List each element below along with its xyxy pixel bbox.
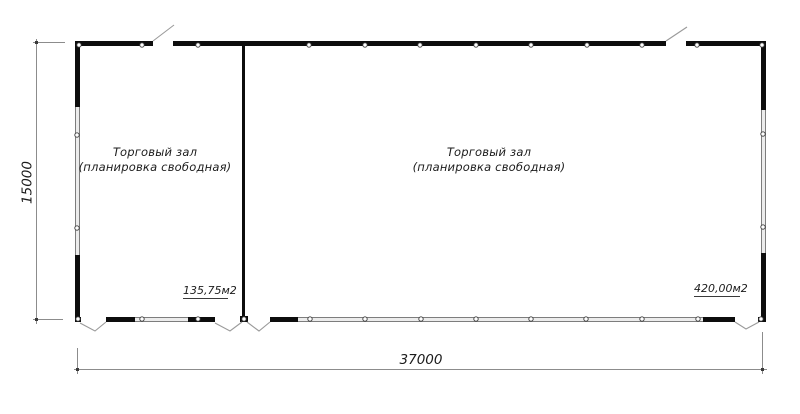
wall-bottom-segment-1 [106,317,135,322]
wall-bottom-segment-2 [188,317,215,322]
wall-top-segment-2 [173,41,666,46]
column-markers [75,43,765,321]
floor-plan-drawing: Торговый зал (планировка свободная) Торг… [0,0,800,414]
room1-label: Торговый зал [75,145,235,159]
room2-area-label: 420,00м2 [694,282,740,297]
wall-right-segment-1 [761,41,766,110]
door-swing-top-left [153,25,174,41]
door-swing-top-right [666,27,687,41]
dimension-tick-icon [35,41,38,44]
window-band-bottom-room2 [298,317,703,322]
partition-wall-base [240,316,248,322]
room2-label: Торговый зал [389,145,589,159]
door-swing-partition-right [247,322,270,331]
room1-sublabel: (планировка свободная) [75,160,235,174]
dimension-tick-icon [761,368,764,371]
wall-bottom-segment-4 [703,317,735,322]
room2-sublabel: (планировка свободная) [389,160,589,174]
wall-top-segment-3 [686,41,766,46]
window-band-left-wall [75,107,80,255]
wall-bottom-segment-3 [270,317,298,322]
partition-wall [242,44,245,317]
dimension-width-value: 37000 [391,352,451,368]
door-swing-partition-left [215,322,242,331]
dimension-line-width [74,369,767,370]
window-band-right-wall [761,110,766,253]
wall-right-segment-2 [761,253,766,322]
room1-area-label: 135,75м2 [183,284,228,299]
dimension-tick-icon [76,368,79,371]
window-band-bottom-room1 [135,317,188,322]
door-swing-bottom-right [735,322,759,329]
wall-left-segment-2 [75,255,80,322]
dimension-line-height [36,39,37,324]
wall-top-segment-1 [75,41,153,46]
dimension-height-value: 15000 [20,153,35,213]
door-swing-bottom-left [80,322,106,331]
wall-left-segment-1 [75,41,80,107]
dimension-tick-icon [35,318,38,321]
